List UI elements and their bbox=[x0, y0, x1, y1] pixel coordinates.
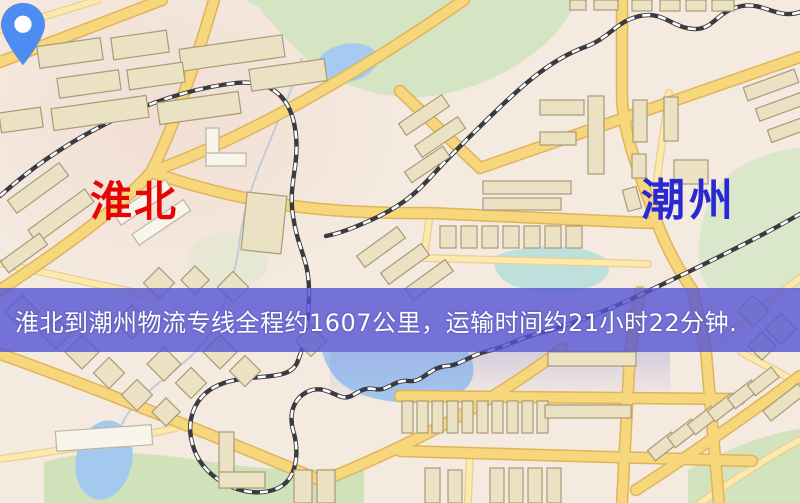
destination-pin-hole bbox=[14, 16, 31, 33]
destination-pin-shape bbox=[1, 3, 45, 65]
route-info-text: 淮北到潮州物流专线全程约1607公里，运输时间约21小时22分钟. bbox=[15, 303, 737, 338]
destination-pin-icon[interactable] bbox=[0, 0, 46, 68]
map-canvas bbox=[0, 0, 800, 503]
origin-city-label: 淮北 bbox=[90, 181, 178, 223]
route-info-banner: 淮北到潮州物流专线全程约1607公里，运输时间约21小时22分钟. bbox=[0, 288, 800, 352]
destination-city-label: 潮州 bbox=[641, 179, 737, 223]
route-map: 淮北 潮州 淮北到潮州物流专线全程约1607公里，运输时间约21小时22分钟. bbox=[0, 0, 800, 503]
